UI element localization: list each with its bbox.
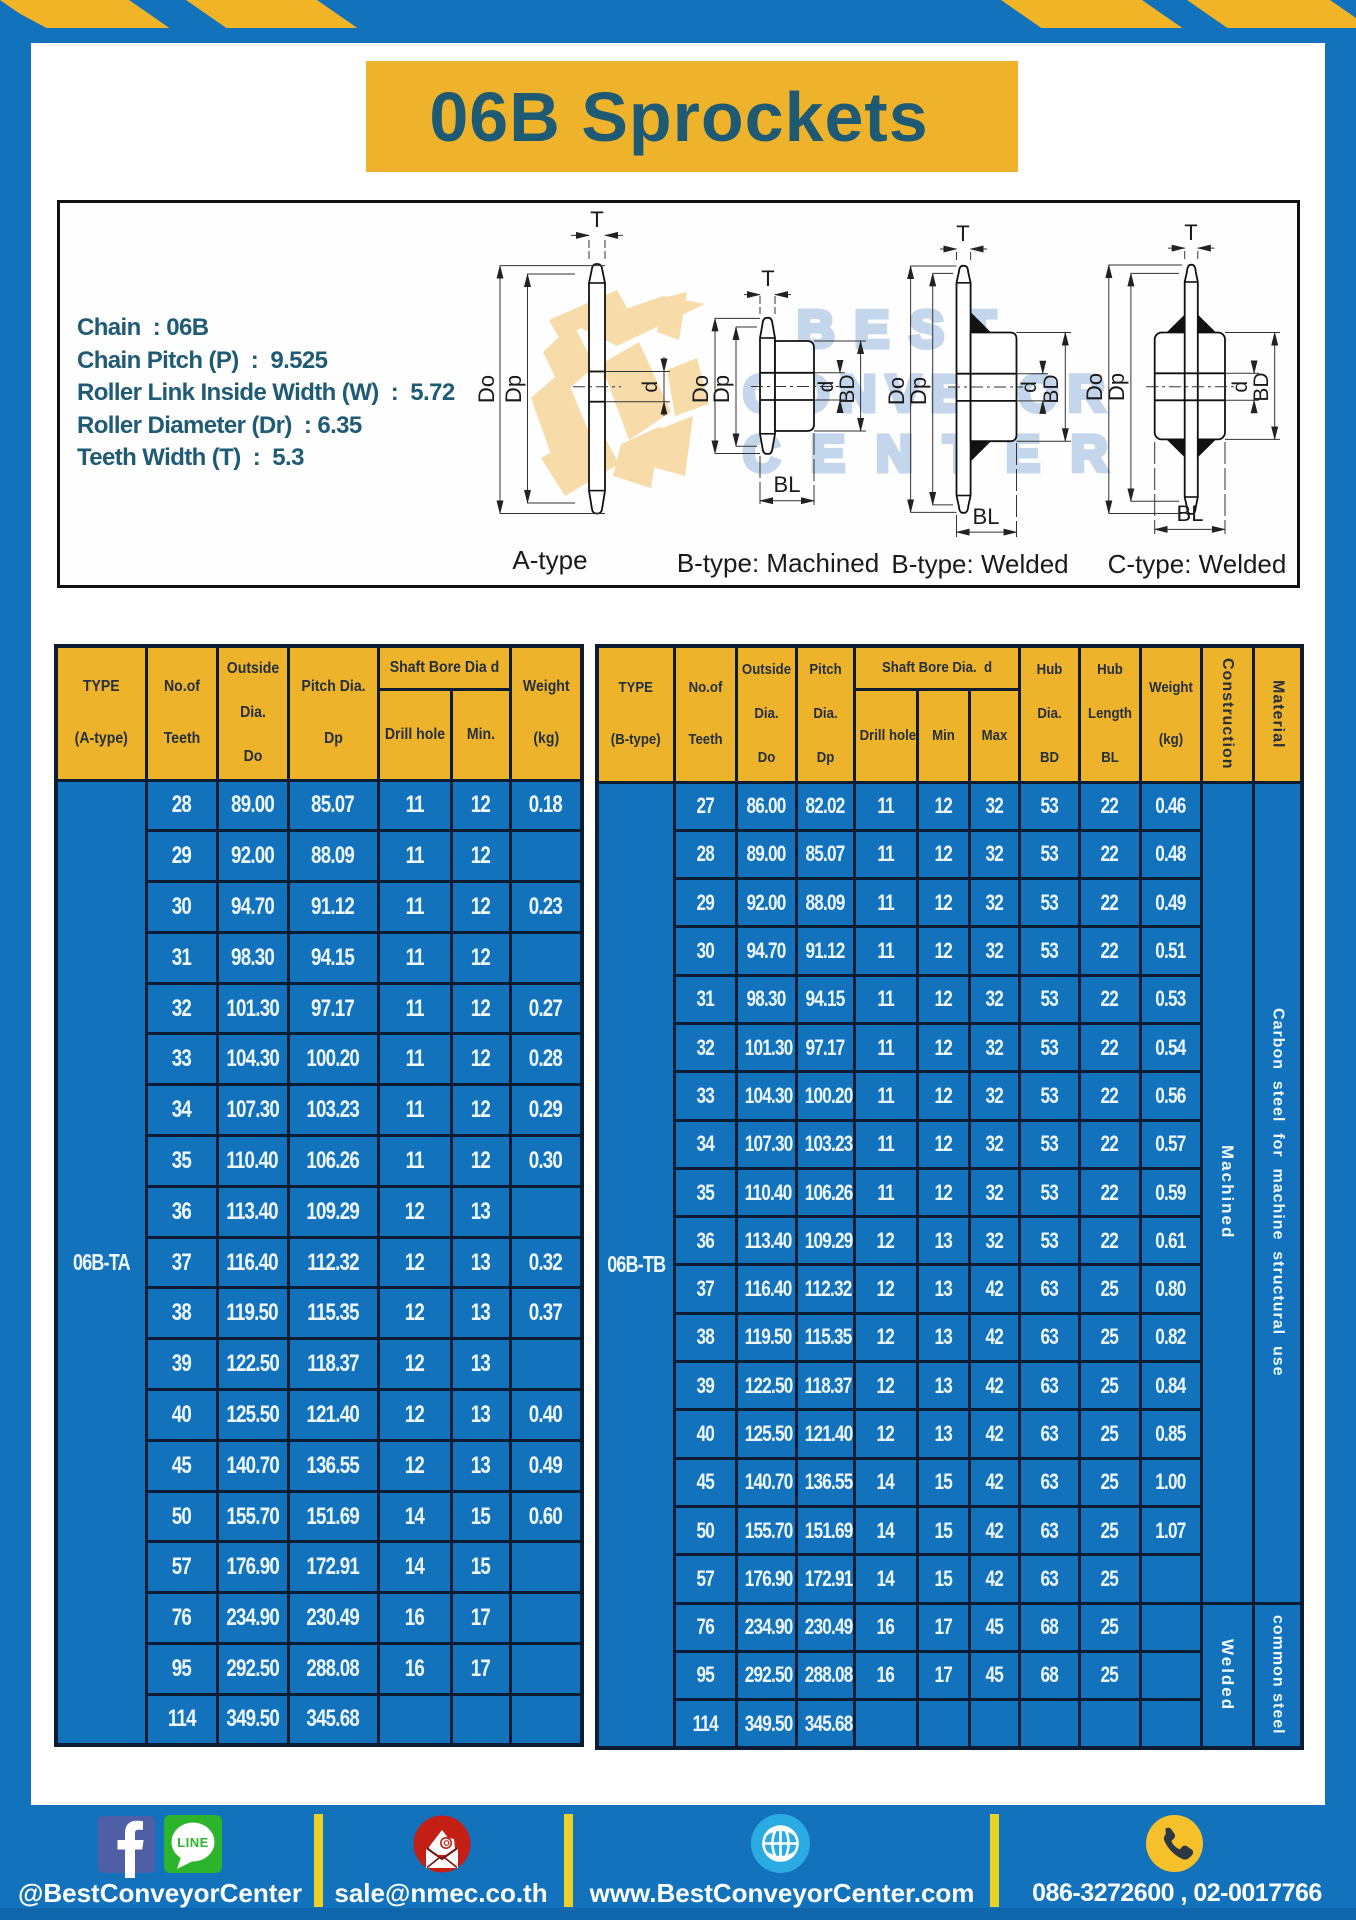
svg-text:BD: BD xyxy=(1040,374,1063,403)
svg-text:T: T xyxy=(956,221,969,246)
svg-text:d: d xyxy=(1229,381,1252,393)
svg-text:B-type: Machined: B-type: Machined xyxy=(677,548,879,578)
svg-text:d: d xyxy=(815,381,838,393)
svg-text:A-type: A-type xyxy=(512,545,587,575)
svg-text:LINE: LINE xyxy=(177,1835,209,1850)
svg-text:B-type: Welded: B-type: Welded xyxy=(891,549,1068,579)
svg-text:T: T xyxy=(761,266,774,291)
svg-text:T: T xyxy=(1184,220,1197,245)
svg-text:BD: BD xyxy=(1250,372,1273,401)
svg-text:Dp: Dp xyxy=(709,375,734,403)
svg-text:BL: BL xyxy=(973,504,1000,529)
svg-text:BD: BD xyxy=(836,374,859,403)
svg-text:BL: BL xyxy=(774,472,801,497)
svg-text:T: T xyxy=(590,207,603,232)
svg-text:Dp: Dp xyxy=(501,375,526,403)
svg-text:Dp: Dp xyxy=(906,377,931,405)
svg-text:BL: BL xyxy=(1177,501,1204,526)
svg-text:Dp: Dp xyxy=(1104,373,1129,401)
svg-text:Do: Do xyxy=(474,375,499,403)
svg-text:d: d xyxy=(1018,381,1041,393)
svg-text:C-type: Welded: C-type: Welded xyxy=(1108,549,1287,579)
svg-text:d: d xyxy=(639,381,662,393)
